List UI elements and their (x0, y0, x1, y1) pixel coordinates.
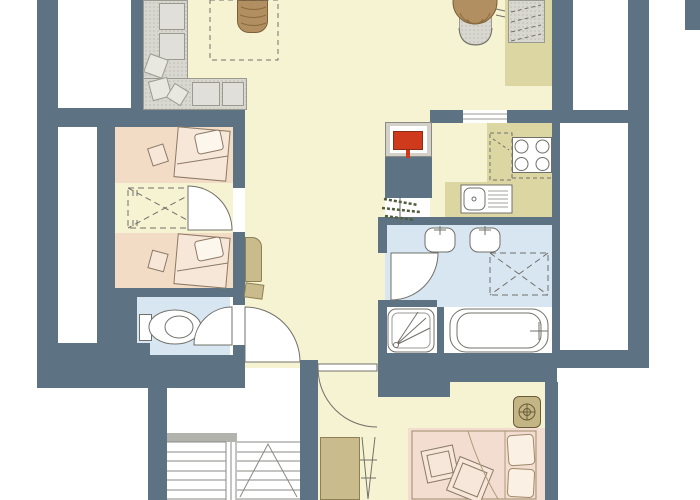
wardrobe-lower-hall (320, 437, 360, 500)
floor-bedroom2 (115, 233, 233, 288)
stairs-rails (226, 442, 236, 500)
wall-kitchen-right-thin (552, 123, 560, 353)
floor-bathroom-lower (385, 307, 552, 353)
wall-bedrooms-right-upper (233, 110, 245, 188)
wall-bedrooms-right-mid (233, 232, 245, 305)
floor-closet-zone (115, 183, 233, 233)
wall-shower-top (387, 300, 437, 307)
floor-bathroom (385, 225, 552, 307)
stairs-direction-arrow (240, 444, 297, 497)
wall-shower-right (437, 307, 444, 353)
stair-landing (167, 433, 237, 442)
stairs-treads-left (167, 442, 226, 499)
wall-outer-left (37, 0, 58, 388)
sofa-cushion-4 (222, 82, 244, 106)
wall-bath-bottom (378, 353, 557, 368)
wall-stairhall-right (300, 360, 318, 500)
floor-bedroom1 (115, 127, 233, 183)
wall-balcony-divider-right-lower (552, 350, 649, 368)
counter-sink-run (445, 182, 552, 217)
cabinet-hallway (245, 237, 262, 282)
wall-bedroom3-right (545, 382, 558, 500)
stove (512, 137, 552, 173)
wall-kitchen-right-thick (552, 0, 573, 110)
wall-kitchen-window-right (507, 110, 572, 123)
wall-living-left (131, 0, 143, 108)
wall-balcony-divider-left (37, 108, 233, 127)
wall-wc-left (110, 297, 137, 355)
wall-bath-left-lower (378, 300, 387, 353)
floor-hallway (245, 110, 385, 368)
wall-stairhall-left (148, 388, 167, 500)
sofa-cushion-3 (192, 82, 220, 106)
window-kitchen (463, 110, 507, 123)
coffee-table (237, 0, 268, 33)
wall-bedroom2-wc-divider (110, 288, 233, 297)
wall-bath-top (378, 217, 552, 225)
wall-stub-top-right (685, 0, 700, 30)
wall-bedroom3-top-right (450, 368, 557, 382)
wall-bath-left-upper (378, 225, 387, 253)
sofa-cushion-2 (159, 33, 185, 60)
wall-bedroom3-top-left (378, 368, 450, 397)
dining-chair (459, 15, 492, 45)
sofa-cushion-1 (159, 3, 185, 30)
stairs-treads-right (237, 442, 300, 499)
bed-double-base (408, 428, 545, 500)
tiled-stove-bedroom (513, 396, 541, 428)
wall-kitchen-window-left (430, 110, 463, 123)
wall-outer-right (628, 0, 649, 368)
fireplace-stem (406, 150, 410, 158)
fireplace-stove (393, 131, 423, 150)
wc-cistern (139, 314, 152, 341)
wall-bedrooms-right-lower (233, 345, 245, 355)
kitchen-bench (508, 0, 545, 43)
wall-under-fireplace (385, 157, 432, 198)
floor-plan (0, 0, 700, 500)
wall-wc-bottom (110, 355, 245, 388)
